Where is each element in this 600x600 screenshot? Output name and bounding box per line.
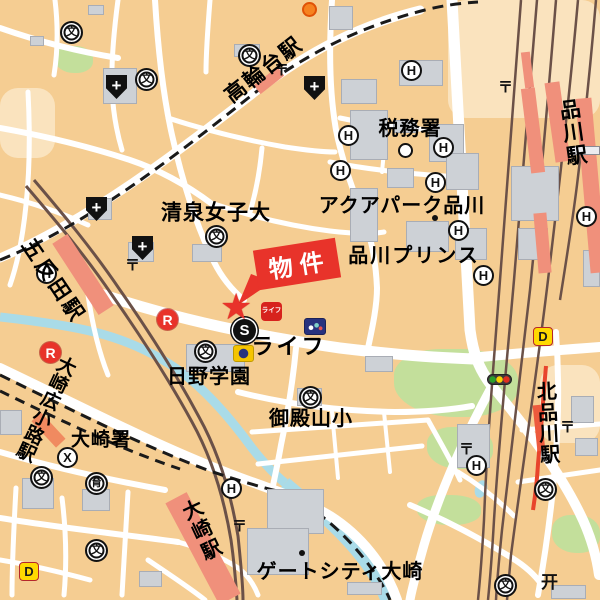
place-label-seisen: 清泉女子大 [161,203,271,224]
building [347,582,382,595]
building [446,153,479,190]
school-icon-seisen: 文 [205,225,228,248]
post-office-icon: 〒 [560,420,575,435]
post-office-icon: 〒 [125,258,140,273]
hotel-icon: H [401,60,422,81]
hotel-icon: H [466,455,487,476]
school-icon: 文 [534,478,557,501]
government-office-icon [398,143,413,158]
hotel-icon: H [448,220,469,241]
place-label-life: ライフ [251,336,326,358]
hotel-icon: H [473,265,494,286]
gas-station-icon [302,2,317,17]
map-canvas: 文 文 文 文 文 文 文 文 文 文 育 + + + + H H H H H … [0,0,600,600]
building [139,571,162,587]
school-icon: 文 [60,21,83,44]
torii-shrine-icon: 开 [541,574,558,591]
post-office-icon: 〒 [459,442,474,457]
place-label-osaki-police: 大崎署 [71,431,131,450]
place-label-hino: 日野学園 [167,367,251,387]
place-label-aqua-park: アクアパーク品川 [319,196,486,216]
hotel-icon: H [221,478,242,499]
school-icon-hino: 文 [194,340,217,363]
building [387,168,414,188]
school-icon: 文 [85,539,108,562]
dennys-icon: D [533,327,553,346]
hotel-icon: H [330,160,351,181]
building [0,410,22,435]
nursery-icon: 育 [85,472,108,495]
life-logo-icon: ライフ [261,302,282,321]
poi-dot [299,550,305,556]
hotel-icon: H [338,125,359,146]
traffic-light-icon [487,374,512,385]
building [329,6,353,30]
school-icon-gotenyama: 文 [299,386,322,409]
building [575,438,598,456]
station-label-kita-shinagawa: 北品川駅 [534,381,558,466]
building [365,356,393,372]
hotel-icon: H [576,206,597,227]
building [30,36,44,46]
building [88,5,104,15]
building [341,79,377,104]
hotel-icon: H [433,137,454,158]
post-office-icon: 〒 [232,519,247,534]
school-icon: 文 [30,466,53,489]
place-label-gotenyama: 御殿山小 [269,409,353,429]
school-icon: 文 [135,68,158,91]
bank-logo-blue-icon [304,318,326,335]
school-icon: 文 [494,574,517,597]
place-label-gatecity: ゲートシティ大崎 [257,562,424,582]
property-star-icon: ★ [220,289,252,325]
post-office-icon: 〒 [498,80,513,95]
dennys-icon: D [19,562,39,581]
place-label-prince: 品川プリンス [348,246,480,266]
restaurant-icon: R [157,309,178,330]
hotel-icon: H [425,172,446,193]
place-label-zeimusho: 税務署 [379,119,442,139]
